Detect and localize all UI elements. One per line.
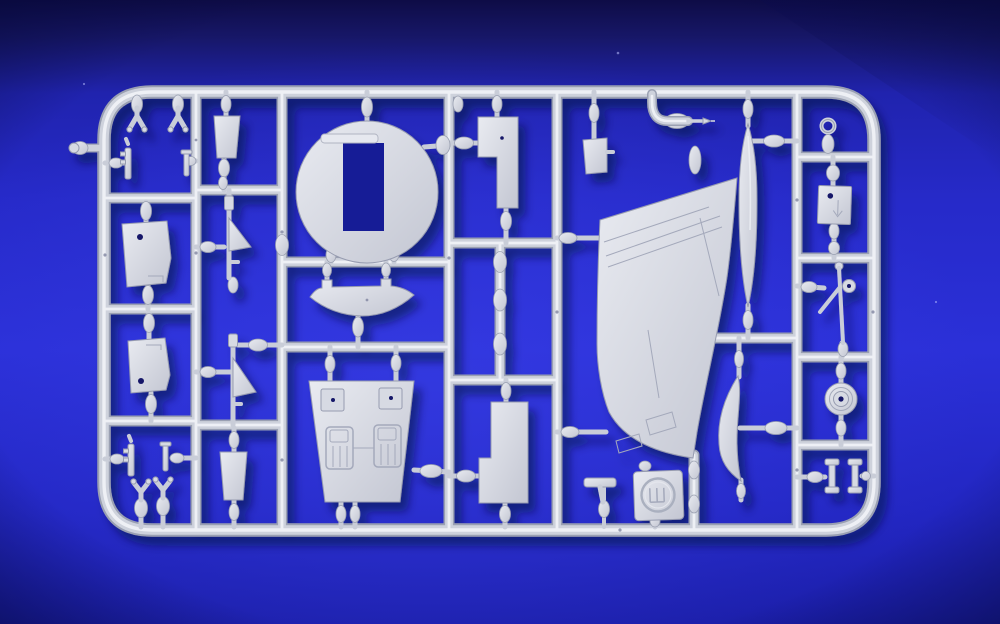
gear-door-trapezoid-1 xyxy=(122,221,171,287)
intake-trapezoid-small-1 xyxy=(214,116,240,158)
bulkhead-disc-with-slot xyxy=(296,121,438,263)
sprue-photo-canvas xyxy=(0,0,1000,624)
main-wheel xyxy=(825,383,857,415)
arrow-marked-plate xyxy=(817,185,851,224)
disc-rect-cutout xyxy=(343,143,384,231)
disc-slot-bar xyxy=(321,134,378,143)
cockpit-tub-with-seats xyxy=(309,381,414,502)
model-sprue-photo: Photograph of an injection-moulded plast… xyxy=(0,0,1000,624)
gear-door-trapezoid-2 xyxy=(128,338,170,393)
external-sprue-tab xyxy=(69,143,79,153)
intake-trapezoid-small-2 xyxy=(220,452,247,500)
runner-bulge xyxy=(276,235,289,256)
maker-logo-plate xyxy=(633,470,684,521)
